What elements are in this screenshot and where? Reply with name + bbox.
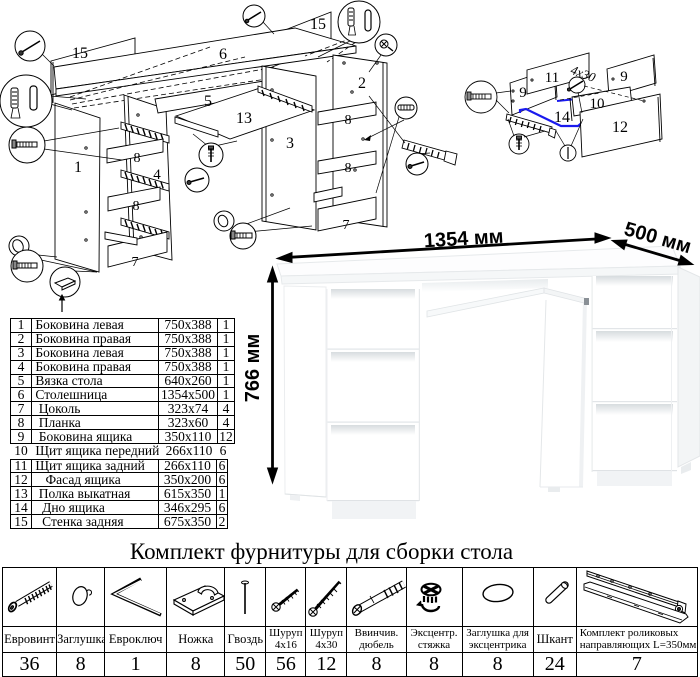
svg-text:5: 5	[204, 93, 212, 110]
svg-text:7: 7	[343, 218, 350, 233]
svg-text:4: 4	[153, 167, 161, 183]
svg-text:10: 10	[590, 96, 605, 112]
svg-text:8: 8	[134, 151, 141, 166]
svg-text:1: 1	[74, 159, 82, 176]
svg-text:15: 15	[310, 16, 326, 33]
svg-text:14: 14	[554, 109, 570, 126]
svg-text:1354 мм: 1354 мм	[423, 226, 504, 253]
svg-text:12: 12	[612, 119, 628, 136]
svg-text:8: 8	[345, 161, 352, 176]
svg-text:8: 8	[345, 113, 352, 128]
svg-text:3: 3	[286, 135, 294, 152]
svg-text:15: 15	[72, 45, 88, 62]
svg-text:7: 7	[132, 255, 139, 270]
svg-text:9: 9	[519, 85, 527, 101]
svg-text:8: 8	[133, 199, 140, 214]
svg-text:2: 2	[358, 75, 366, 92]
svg-text:11: 11	[545, 70, 559, 86]
svg-text:9: 9	[620, 69, 628, 85]
svg-text:6: 6	[219, 46, 227, 63]
svg-text:13: 13	[236, 110, 252, 127]
svg-text:766 мм: 766 мм	[242, 334, 264, 403]
